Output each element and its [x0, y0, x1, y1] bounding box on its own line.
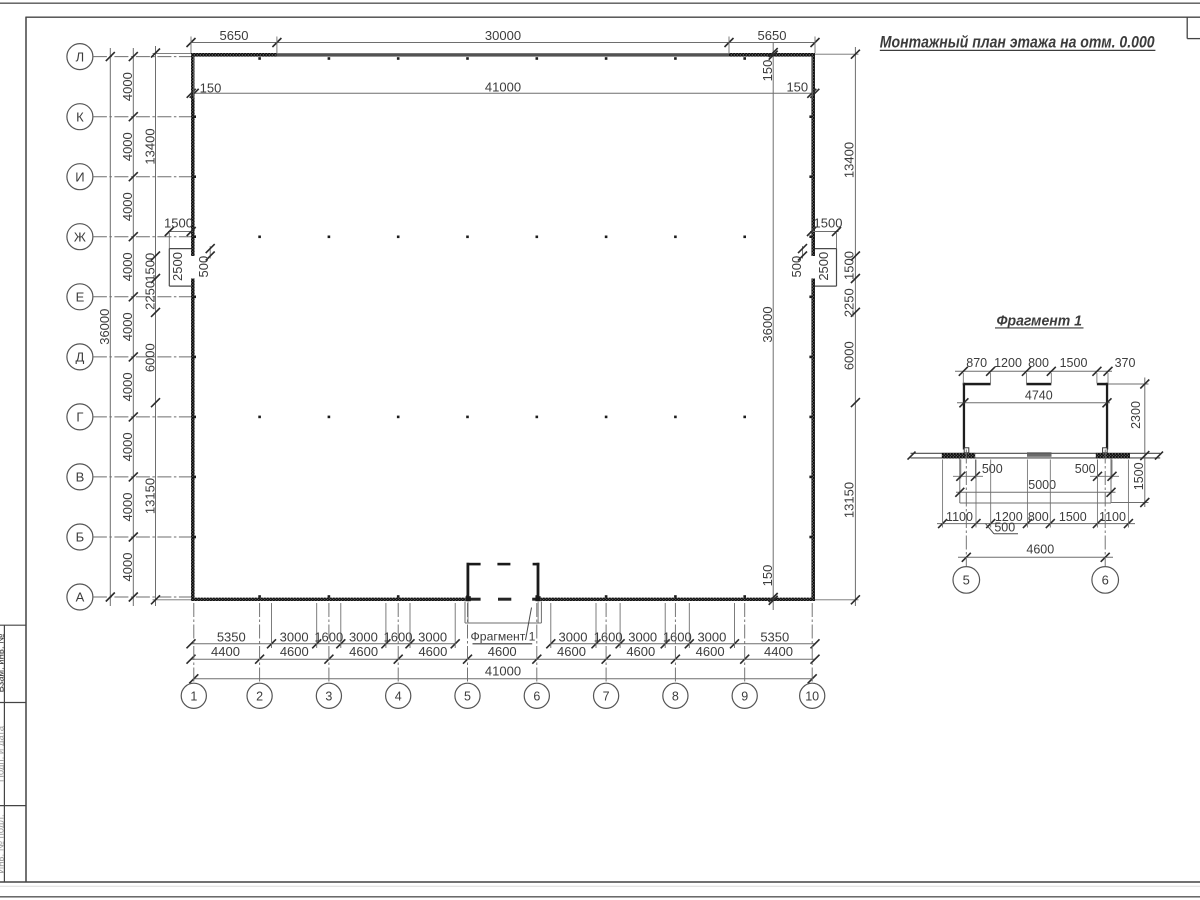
svg-text:2300: 2300	[1129, 401, 1143, 429]
svg-text:В: В	[76, 470, 85, 485]
svg-text:Фрагмент 1: Фрагмент 1	[997, 314, 1083, 330]
svg-text:4400: 4400	[764, 644, 793, 659]
svg-text:1100: 1100	[946, 510, 973, 524]
svg-text:6000: 6000	[142, 343, 157, 372]
svg-text:1500: 1500	[1059, 510, 1087, 524]
svg-text:3000: 3000	[628, 629, 657, 644]
svg-text:500: 500	[196, 256, 211, 278]
svg-text:3000: 3000	[559, 629, 588, 644]
svg-text:1500: 1500	[164, 215, 193, 230]
svg-text:1500: 1500	[842, 251, 857, 280]
svg-text:3000: 3000	[280, 629, 309, 644]
svg-text:3000: 3000	[418, 629, 447, 644]
svg-text:4: 4	[395, 689, 402, 703]
svg-text:36000: 36000	[97, 309, 112, 345]
svg-text:150: 150	[200, 80, 222, 95]
svg-text:5000: 5000	[1028, 478, 1056, 492]
svg-text:4000: 4000	[120, 372, 135, 401]
svg-text:9: 9	[741, 689, 748, 703]
svg-text:4600: 4600	[626, 644, 655, 659]
svg-text:Д: Д	[75, 350, 84, 365]
svg-text:7: 7	[603, 689, 610, 703]
svg-text:870: 870	[966, 356, 987, 370]
svg-text:41000: 41000	[485, 664, 521, 679]
svg-text:2250: 2250	[842, 288, 857, 317]
svg-text:10: 10	[805, 689, 819, 703]
svg-text:3000: 3000	[349, 629, 378, 644]
svg-text:13400: 13400	[842, 142, 857, 178]
svg-text:5: 5	[963, 573, 970, 588]
svg-text:4600: 4600	[1026, 543, 1054, 557]
svg-text:4000: 4000	[120, 72, 135, 101]
svg-text:1600: 1600	[663, 629, 692, 644]
svg-text:4740: 4740	[1025, 389, 1053, 403]
svg-text:4000: 4000	[120, 432, 135, 461]
svg-text:Г: Г	[76, 410, 83, 425]
svg-text:К: К	[76, 109, 84, 124]
svg-text:4000: 4000	[120, 493, 135, 522]
svg-text:А: А	[76, 590, 85, 605]
svg-text:3: 3	[325, 689, 332, 703]
svg-text:5650: 5650	[220, 28, 249, 43]
svg-text:4000: 4000	[120, 192, 135, 221]
svg-text:2250: 2250	[142, 281, 157, 310]
svg-text:4600: 4600	[488, 644, 517, 659]
svg-text:4000: 4000	[120, 312, 135, 341]
svg-text:41000: 41000	[485, 79, 521, 94]
svg-text:2500: 2500	[816, 252, 831, 281]
svg-text:Фрагмент 1: Фрагмент 1	[471, 630, 536, 644]
svg-text:150: 150	[760, 565, 775, 587]
svg-text:5: 5	[464, 689, 471, 703]
svg-text:И: И	[75, 169, 84, 184]
svg-text:1500: 1500	[1060, 356, 1088, 370]
svg-text:500: 500	[982, 462, 1003, 476]
svg-text:2: 2	[256, 689, 263, 703]
svg-text:Монтажный план этажа на отм. 0: Монтажный план этажа на отм. 0.000	[880, 34, 1155, 52]
svg-text:6: 6	[533, 689, 540, 703]
svg-text:6: 6	[1102, 573, 1109, 588]
svg-text:Л: Л	[76, 49, 85, 64]
svg-text:5350: 5350	[217, 629, 246, 644]
svg-text:6000: 6000	[842, 341, 857, 370]
svg-text:5650: 5650	[758, 28, 787, 43]
svg-text:1100: 1100	[1099, 510, 1126, 524]
svg-text:4000: 4000	[120, 553, 135, 582]
svg-text:1: 1	[190, 689, 197, 703]
svg-text:800: 800	[1028, 356, 1049, 370]
svg-text:4600: 4600	[280, 644, 309, 659]
svg-text:150: 150	[760, 60, 775, 82]
svg-text:Е: Е	[76, 290, 85, 305]
svg-text:4400: 4400	[211, 644, 240, 659]
svg-text:5350: 5350	[760, 629, 789, 644]
svg-text:30000: 30000	[485, 28, 521, 43]
svg-text:13400: 13400	[142, 128, 157, 164]
svg-text:1500: 1500	[1132, 462, 1146, 490]
svg-text:1600: 1600	[594, 629, 623, 644]
svg-text:13150: 13150	[842, 482, 857, 518]
svg-text:1500: 1500	[814, 215, 843, 230]
svg-text:1200: 1200	[994, 356, 1022, 370]
svg-text:8: 8	[672, 689, 679, 703]
svg-text:4600: 4600	[349, 644, 378, 659]
svg-text:4600: 4600	[696, 644, 725, 659]
svg-text:370: 370	[1115, 356, 1136, 370]
svg-text:13150: 13150	[142, 478, 157, 514]
svg-text:500: 500	[789, 256, 804, 278]
svg-text:Ж: Ж	[74, 229, 86, 244]
svg-text:800: 800	[1028, 510, 1049, 524]
svg-text:3000: 3000	[697, 629, 726, 644]
svg-text:500: 500	[1075, 462, 1096, 476]
svg-text:4000: 4000	[120, 132, 135, 161]
svg-text:500: 500	[994, 521, 1015, 535]
svg-text:4000: 4000	[120, 252, 135, 281]
svg-text:Б: Б	[76, 530, 85, 545]
svg-text:2500: 2500	[170, 252, 185, 281]
svg-text:1500: 1500	[142, 253, 157, 282]
svg-text:4600: 4600	[418, 644, 447, 659]
svg-text:4600: 4600	[557, 644, 586, 659]
svg-text:150: 150	[786, 79, 808, 94]
svg-text:36000: 36000	[760, 306, 775, 342]
